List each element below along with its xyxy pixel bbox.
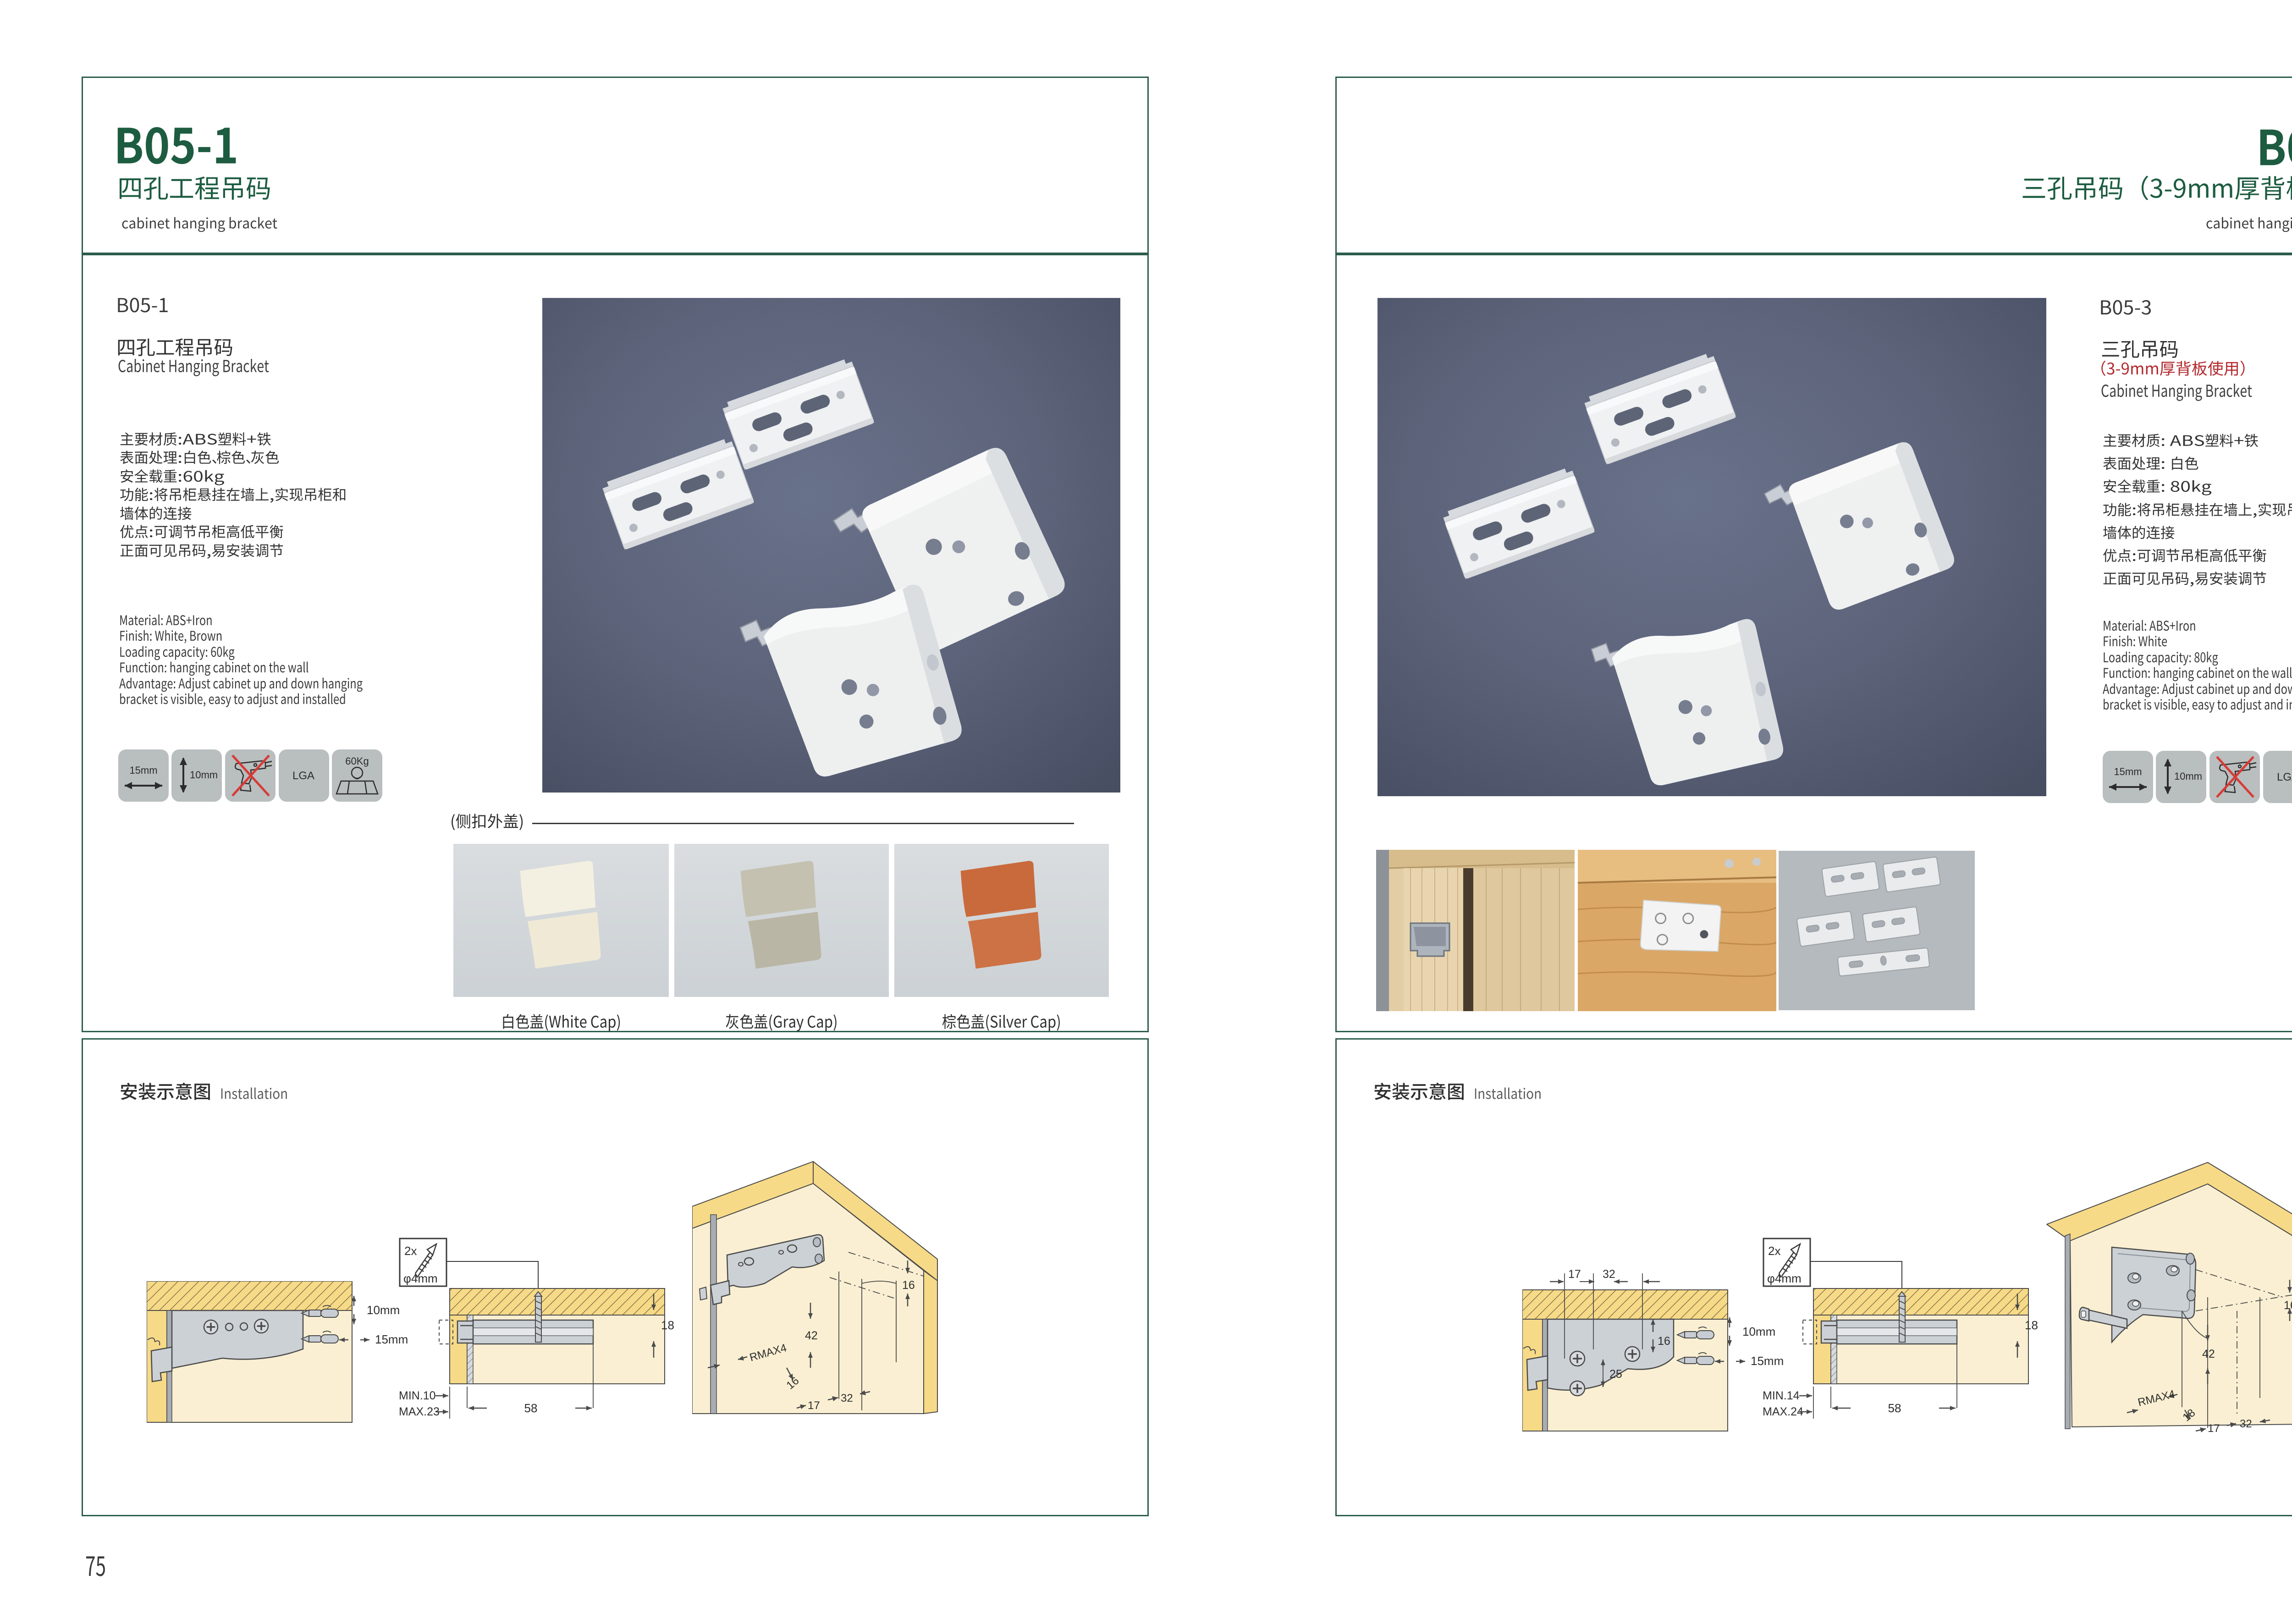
svg-text:32: 32 xyxy=(1603,1270,1615,1281)
svg-text:58: 58 xyxy=(1888,1401,1901,1415)
svg-text:φ4mm: φ4mm xyxy=(403,1272,438,1285)
svg-text:16: 16 xyxy=(2284,1299,2292,1312)
svg-text:32: 32 xyxy=(2240,1418,2252,1430)
svg-text:32: 32 xyxy=(841,1392,853,1404)
svg-text:LGA: LGA xyxy=(2277,771,2292,783)
svg-text:MIN.10: MIN.10 xyxy=(399,1389,436,1402)
svg-text:MAX.23: MAX.23 xyxy=(399,1405,440,1418)
svg-text:25: 25 xyxy=(1609,1368,1622,1381)
svg-text:16: 16 xyxy=(902,1279,915,1292)
svg-text:2x: 2x xyxy=(1768,1244,1780,1258)
svg-text:10mm: 10mm xyxy=(2174,771,2202,782)
svg-text:58: 58 xyxy=(524,1401,538,1415)
svg-text:15mm: 15mm xyxy=(2114,766,2142,777)
svg-text:17: 17 xyxy=(2208,1422,2220,1432)
svg-text:42: 42 xyxy=(805,1329,818,1342)
svg-text:10mm: 10mm xyxy=(367,1303,400,1317)
svg-text:17: 17 xyxy=(1568,1270,1581,1281)
svg-text:10mm: 10mm xyxy=(190,769,218,781)
svg-text:60Kg: 60Kg xyxy=(345,755,369,767)
svg-text:MAX.24: MAX.24 xyxy=(1763,1405,1803,1418)
svg-text:18: 18 xyxy=(2025,1318,2038,1332)
svg-text:16: 16 xyxy=(1658,1335,1670,1348)
svg-text:φ4mm: φ4mm xyxy=(1767,1272,1802,1285)
svg-text:17: 17 xyxy=(808,1399,820,1412)
svg-text:42: 42 xyxy=(2202,1348,2215,1360)
svg-text:15mm: 15mm xyxy=(129,765,157,776)
svg-text:18: 18 xyxy=(661,1318,674,1332)
svg-text:2x: 2x xyxy=(404,1244,417,1258)
svg-text:MIN.14: MIN.14 xyxy=(1763,1389,1800,1402)
svg-text:LGA: LGA xyxy=(292,770,314,782)
